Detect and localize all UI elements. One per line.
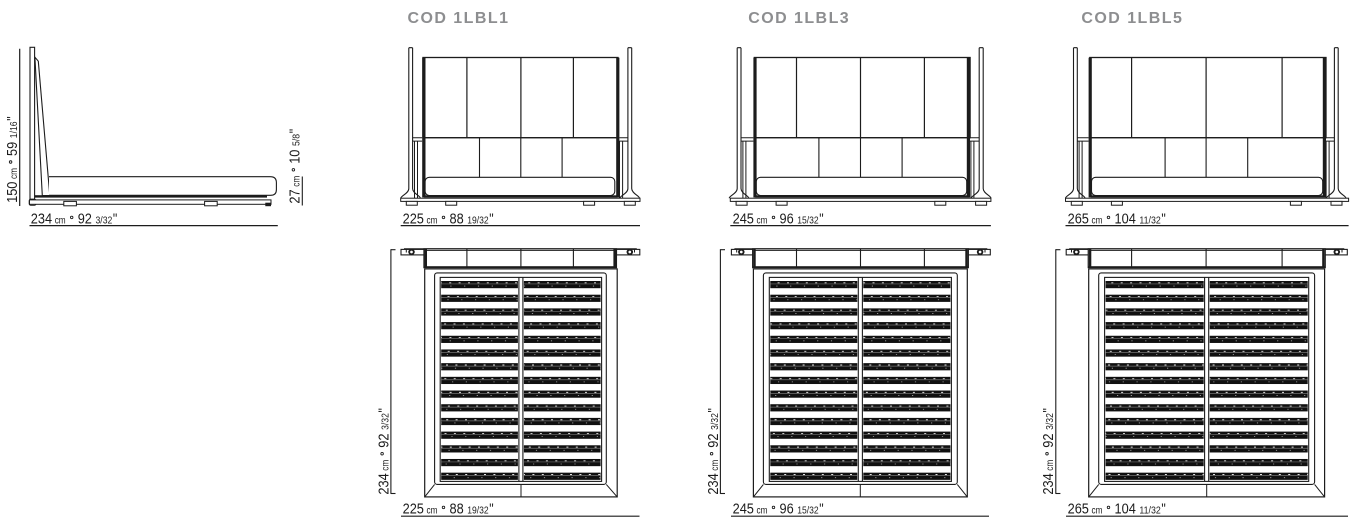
svg-text:cm: cm — [710, 460, 721, 471]
svg-text:92: 92 — [1040, 434, 1057, 448]
svg-text:15/32: 15/32 — [797, 506, 819, 517]
svg-text:245: 245 — [733, 501, 754, 518]
svg-text:10: 10 — [287, 150, 304, 164]
svg-text:COD 1LBL5: COD 1LBL5 — [1081, 10, 1183, 27]
svg-text:3/32: 3/32 — [96, 216, 113, 227]
svg-text:3/32: 3/32 — [1045, 413, 1056, 430]
svg-text:11/32: 11/32 — [1139, 216, 1161, 227]
svg-text:92: 92 — [705, 434, 722, 448]
svg-text:cm: cm — [1092, 506, 1103, 517]
svg-text:19/32: 19/32 — [467, 506, 489, 517]
svg-text:234: 234 — [1040, 473, 1057, 494]
svg-text:104: 104 — [1115, 501, 1136, 518]
svg-text:cm: cm — [1045, 460, 1056, 471]
svg-text:": " — [819, 501, 823, 518]
svg-text:COD 1LBL1: COD 1LBL1 — [408, 10, 510, 27]
svg-text:15/32: 15/32 — [797, 216, 819, 227]
svg-text:234: 234 — [375, 473, 392, 494]
svg-text:19/32: 19/32 — [467, 216, 489, 227]
svg-text:3/32: 3/32 — [380, 413, 391, 430]
svg-text:": " — [489, 501, 493, 518]
svg-text:cm: cm — [757, 506, 768, 517]
svg-text:150: 150 — [4, 182, 21, 203]
svg-text:225: 225 — [403, 501, 424, 518]
svg-text:cm: cm — [380, 460, 391, 471]
svg-text:88: 88 — [450, 501, 464, 518]
svg-text:cm: cm — [427, 506, 438, 517]
svg-text:": " — [375, 408, 392, 412]
svg-text:59: 59 — [4, 142, 21, 156]
svg-text:1/16: 1/16 — [9, 121, 20, 138]
svg-text:": " — [705, 408, 722, 412]
svg-text:": " — [4, 116, 21, 120]
svg-text:": " — [287, 129, 304, 133]
svg-text:cm: cm — [9, 168, 20, 179]
svg-text:3/32: 3/32 — [710, 413, 721, 430]
svg-text:cm: cm — [427, 216, 438, 227]
svg-text:27: 27 — [287, 189, 304, 203]
svg-text:COD 1LBL3: COD 1LBL3 — [748, 10, 850, 27]
svg-text:": " — [1040, 408, 1057, 412]
svg-text:265: 265 — [1068, 501, 1089, 518]
svg-text:cm: cm — [1092, 216, 1103, 227]
svg-text:11/32: 11/32 — [1139, 506, 1161, 517]
svg-text:": " — [1161, 501, 1165, 518]
svg-text:92: 92 — [375, 434, 392, 448]
svg-text:cm: cm — [55, 216, 66, 227]
svg-text:cm: cm — [757, 216, 768, 227]
svg-text:234: 234 — [705, 473, 722, 494]
svg-text:cm: cm — [292, 176, 303, 187]
svg-text:5/8: 5/8 — [292, 134, 303, 146]
svg-text:96: 96 — [780, 501, 794, 518]
